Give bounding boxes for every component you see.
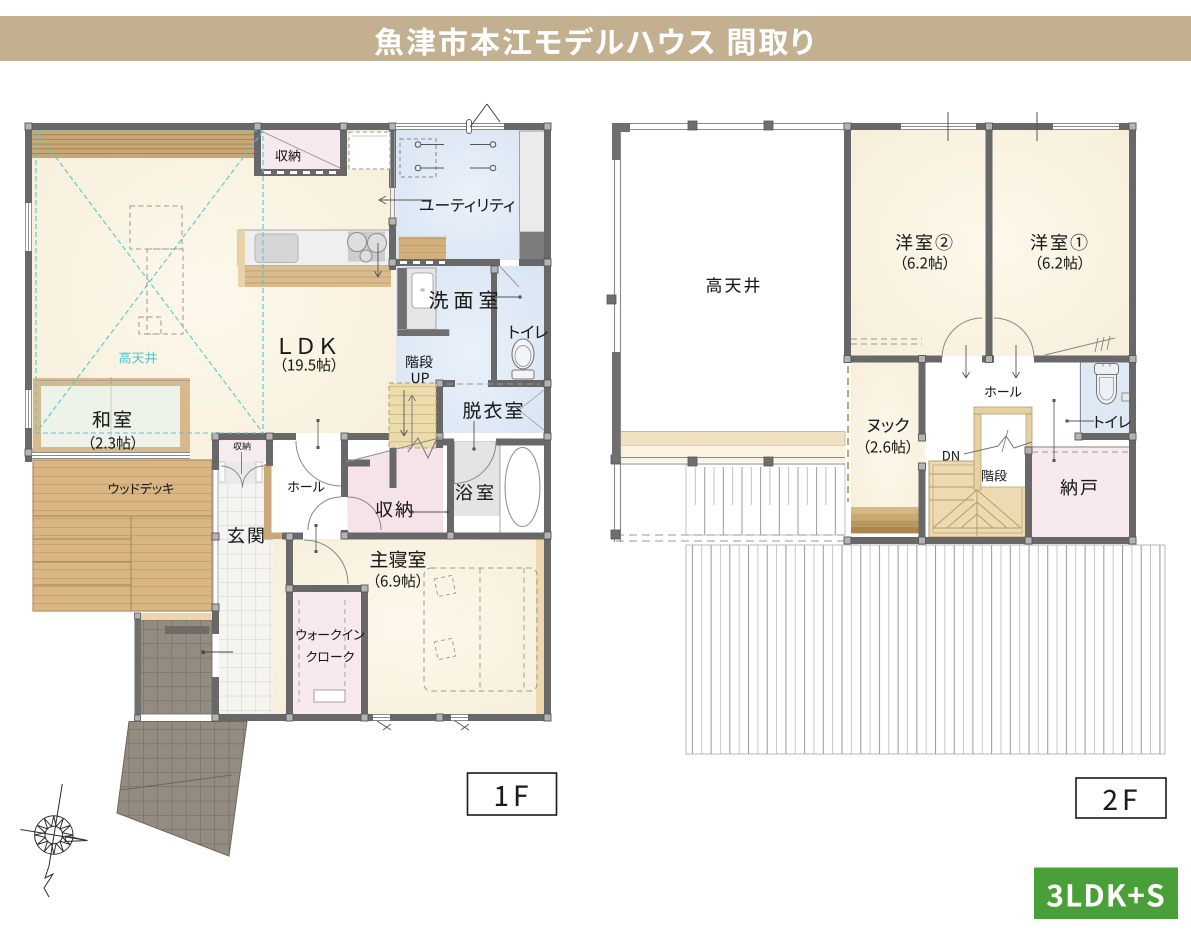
svg-text:DN: DN [942, 446, 960, 465]
svg-text:玄関: 玄関 [227, 522, 267, 548]
svg-text:トイレ: トイレ [1093, 412, 1131, 433]
svg-text:2F: 2F [1102, 779, 1141, 819]
svg-text:（6.2帖）: （6.2帖） [900, 253, 951, 274]
svg-text:ウォークイン: ウォークイン [295, 625, 365, 644]
svg-text:収納: 収納 [375, 496, 415, 522]
svg-text:高天井: 高天井 [118, 348, 157, 367]
svg-text:ヌック: ヌック [866, 412, 909, 437]
svg-text:魚津市本江モデルハウス 間取り: 魚津市本江モデルハウス 間取り [374, 18, 816, 62]
svg-text:（19.5帖）: （19.5帖） [279, 355, 338, 376]
svg-text:1F: 1F [493, 775, 532, 815]
svg-text:収納: 収納 [275, 146, 301, 165]
svg-text:（6.2帖）: （6.2帖） [1035, 253, 1086, 274]
svg-text:洋室①: 洋室① [1030, 229, 1090, 255]
svg-text:納戸: 納戸 [1060, 474, 1100, 500]
svg-text:ウッドデッキ: ウッドデッキ [108, 479, 175, 498]
svg-text:ホール: ホール [984, 382, 1022, 401]
svg-text:UP: UP [410, 368, 429, 388]
svg-text:階段: 階段 [981, 466, 1007, 485]
svg-text:ユーティリティ: ユーティリティ [419, 192, 515, 216]
svg-text:ホール: ホール [287, 477, 325, 496]
svg-text:（6.9帖）: （6.9帖） [373, 571, 424, 592]
svg-text:トイレ: トイレ [508, 319, 549, 343]
svg-text:クローク: クローク [306, 647, 355, 666]
svg-text:脱衣室: 脱衣室 [462, 397, 525, 424]
svg-text:（2.6帖）: （2.6帖） [863, 437, 914, 458]
svg-text:和室: 和室 [92, 406, 134, 433]
svg-text:3LDK+S: 3LDK+S [1046, 872, 1165, 916]
svg-text:洗面室: 洗面室 [429, 285, 504, 314]
svg-text:浴室: 浴室 [455, 479, 497, 505]
svg-text:高天井: 高天井 [706, 272, 763, 297]
svg-text:収納: 収納 [233, 440, 251, 453]
svg-text:主寝室: 主寝室 [369, 546, 426, 573]
svg-text:（2.3帖）: （2.3帖） [88, 433, 139, 454]
svg-text:洋室②: 洋室② [895, 229, 955, 255]
